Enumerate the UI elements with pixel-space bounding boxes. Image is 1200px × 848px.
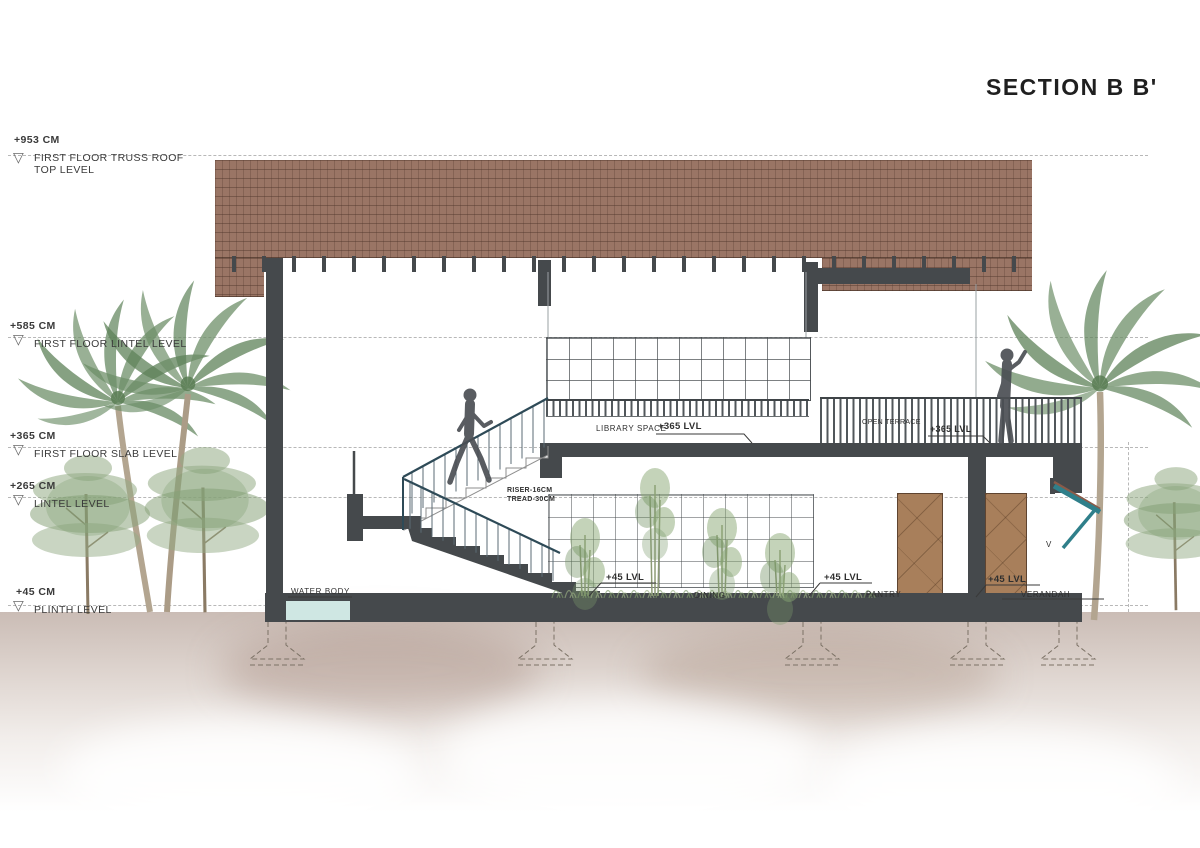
foundation-footings [250, 622, 1095, 665]
dining-label: DINING [694, 591, 726, 600]
level-marker-triangle-icon: ▽ [13, 332, 24, 346]
walking-person-figure [450, 389, 491, 483]
library-space-label: LIBRARY SPACE [596, 424, 667, 433]
v-marker-label: V [1046, 540, 1052, 549]
section-drawing-canvas: +953 CM ▽ FIRST FLOOR TRUSS ROOF TOP LEV… [0, 0, 1200, 848]
level-marker-triangle-icon: ▽ [13, 442, 24, 456]
terrace-level-label: +365 LVL [930, 424, 972, 434]
column-lines [548, 272, 976, 397]
verandah-label: VERANDAH [1021, 590, 1070, 599]
drawing-title: SECTION B B' [986, 74, 1158, 101]
tread-note: TREAD-30CM [507, 496, 555, 503]
level-marker-triangle-icon: ▽ [13, 492, 24, 506]
water-body-label: WATER BODY [291, 587, 350, 596]
pantry-label: PANTRY [866, 590, 901, 599]
level-elevation: +953 CM [14, 134, 60, 146]
open-terrace-label: OPEN TERRACE [862, 419, 921, 426]
riser-note: RISER-16CM [507, 487, 552, 494]
level-label: FIRST FLOOR SLAB LEVEL [34, 448, 210, 460]
level-marker-triangle-icon: ▽ [13, 150, 24, 164]
standing-person-figure [999, 349, 1025, 442]
bamboo-plants [552, 468, 875, 625]
level-label: PLINTH LEVEL [34, 604, 210, 616]
level-label: LINTEL LEVEL [34, 498, 210, 510]
dining-level-label: +45 LVL [606, 572, 644, 583]
library-level-label: +365 LVL [658, 421, 702, 432]
verandah-canopy-bracket [1050, 478, 1100, 548]
level-label: FIRST FLOOR LINTEL LEVEL [34, 338, 210, 350]
pantry-level-label: +45 LVL [824, 572, 862, 583]
verandah-level-label: +45 LVL [988, 574, 1026, 585]
level-marker-triangle-icon: ▽ [13, 598, 24, 612]
level-label: FIRST FLOOR TRUSS ROOF TOP LEVEL [34, 152, 194, 176]
